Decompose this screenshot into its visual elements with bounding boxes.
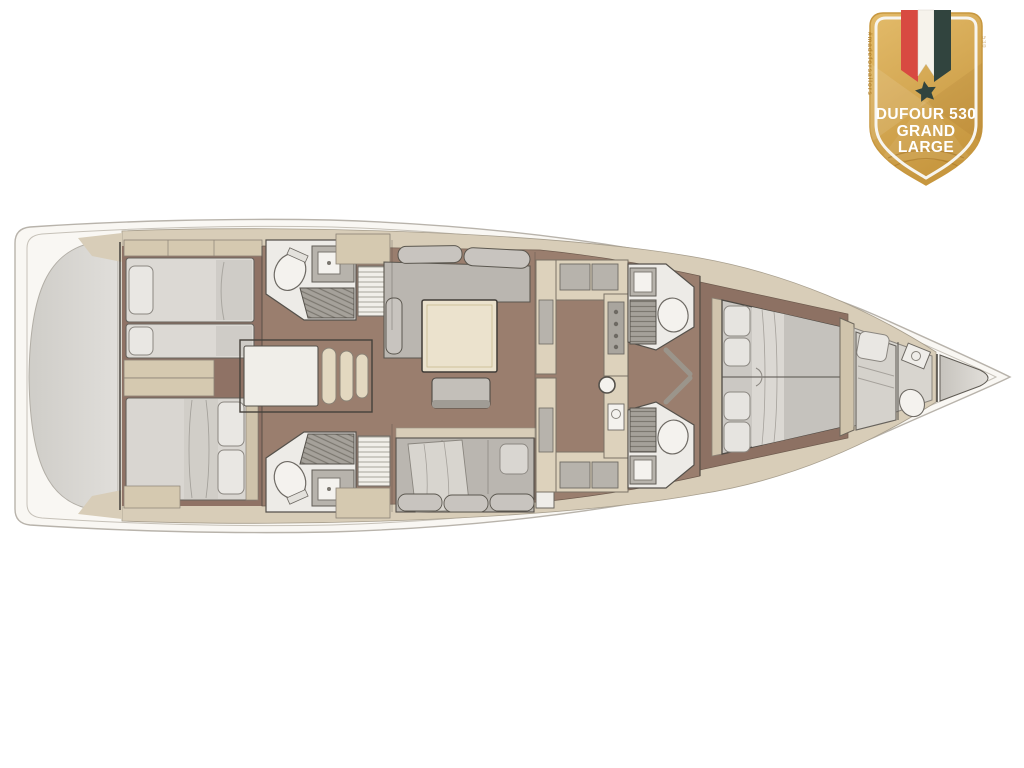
locker-strip: [124, 240, 262, 256]
shower-grate: [630, 300, 656, 344]
badge-watermark: 530: [980, 36, 986, 96]
pillow: [129, 266, 153, 314]
overhead-cabinet: [336, 234, 390, 264]
landing: [244, 346, 318, 406]
galley-locker: [592, 264, 618, 290]
pillow: [724, 422, 750, 452]
faucet: [327, 487, 331, 491]
badge-shield: [862, 8, 990, 186]
settee-back-cushion: [490, 494, 534, 511]
dufour-530-badge: DUFOUR 530 GRAND LARGE #madeforsailors 5…: [862, 8, 990, 186]
aft-cabin-starboard: [124, 378, 258, 508]
sofa-back-cushion: [464, 247, 531, 268]
step: [356, 354, 368, 398]
pillow: [129, 327, 153, 355]
hanging-locker-louver: [358, 436, 390, 486]
pillow: [724, 392, 750, 420]
side-shelf: [124, 378, 214, 396]
sofa-back-cushion: [386, 298, 402, 354]
pillow: [724, 306, 750, 336]
burner: [614, 322, 618, 326]
pillow: [856, 331, 890, 363]
pillow: [500, 444, 528, 474]
burner: [614, 310, 618, 314]
sofa-back-cushion: [398, 245, 462, 263]
shower-grate: [300, 434, 354, 464]
badge-title-line1: DUFOUR 530: [862, 107, 990, 124]
galley-locker: [592, 462, 618, 488]
faucet: [327, 261, 331, 265]
badge-title-line3: LARGE: [862, 140, 990, 157]
galley-locker: [560, 462, 590, 488]
badge-title-line2: GRAND: [862, 124, 990, 141]
headboard: [246, 398, 258, 500]
aft-cabin-port: [124, 240, 262, 378]
step: [340, 351, 353, 401]
burner: [614, 334, 618, 338]
headboard: [712, 298, 722, 456]
side-shelf: [124, 360, 214, 378]
galley-worktop: [539, 300, 553, 344]
aft-head-port: [266, 234, 390, 320]
shower-grate: [630, 408, 656, 452]
bow-bulkhead: [840, 318, 854, 436]
pillow: [218, 450, 244, 494]
aft-head-starboard: [266, 432, 390, 518]
settee-back-cushion: [398, 494, 442, 511]
step: [322, 348, 336, 404]
burner: [614, 345, 618, 349]
settee-shelf: [396, 428, 536, 438]
sink: [634, 460, 652, 480]
corner-locker: [124, 486, 180, 508]
galley-locker: [560, 264, 590, 290]
pillow: [724, 338, 750, 366]
saloon-table: [422, 300, 497, 372]
ribbon-stripe-dark: [934, 10, 951, 82]
mast-post: [599, 377, 615, 393]
bench-back: [432, 400, 490, 408]
ribbon-stripe-red: [901, 10, 918, 82]
shower-grate: [300, 288, 354, 318]
yacht-floorplan-page: DUFOUR 530 GRAND LARGE #madeforsailors 5…: [0, 0, 1024, 768]
galley-worktop: [539, 408, 553, 452]
badge-hashtag: #madeforsailors: [866, 32, 873, 142]
sink: [634, 272, 652, 292]
settee-back-cushion: [444, 495, 488, 512]
overhead-cabinet: [336, 488, 390, 518]
badge-title: DUFOUR 530 GRAND LARGE: [862, 107, 990, 157]
galley-sink: [608, 404, 624, 430]
